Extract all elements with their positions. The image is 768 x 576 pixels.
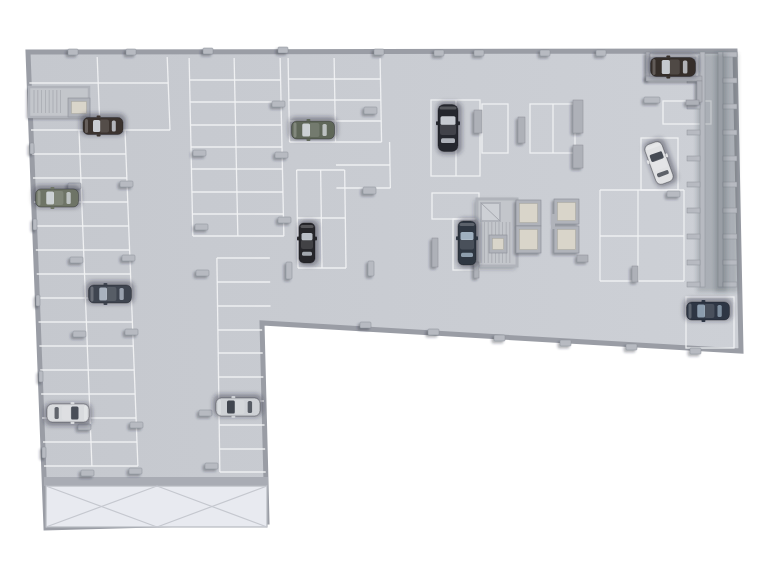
car-black-sedan-center: [297, 220, 319, 266]
garage-floor-plan-svg: [0, 0, 768, 576]
car-blue-sedan-by-core: [456, 218, 480, 268]
car-dark-sedan-topleft: [80, 114, 126, 137]
car-silver-sedan-south: [213, 394, 263, 418]
car-green-sedan-center: [289, 117, 338, 141]
ramp: [44, 477, 268, 527]
stairwell-top-left: [27, 87, 91, 120]
car-slate-sedan-west: [86, 281, 135, 305]
car-brown-sedan-topright: [648, 54, 699, 79]
floor: [28, 51, 741, 528]
car-olive-sedan-west: [33, 185, 82, 209]
car-dark-van-center: [436, 102, 462, 155]
stair-elevator-core: [475, 199, 518, 269]
parking-garage-render: [0, 0, 768, 576]
car-navy-sedan-southeast: [684, 298, 733, 322]
car-white-sedan-southwest: [44, 402, 92, 426]
